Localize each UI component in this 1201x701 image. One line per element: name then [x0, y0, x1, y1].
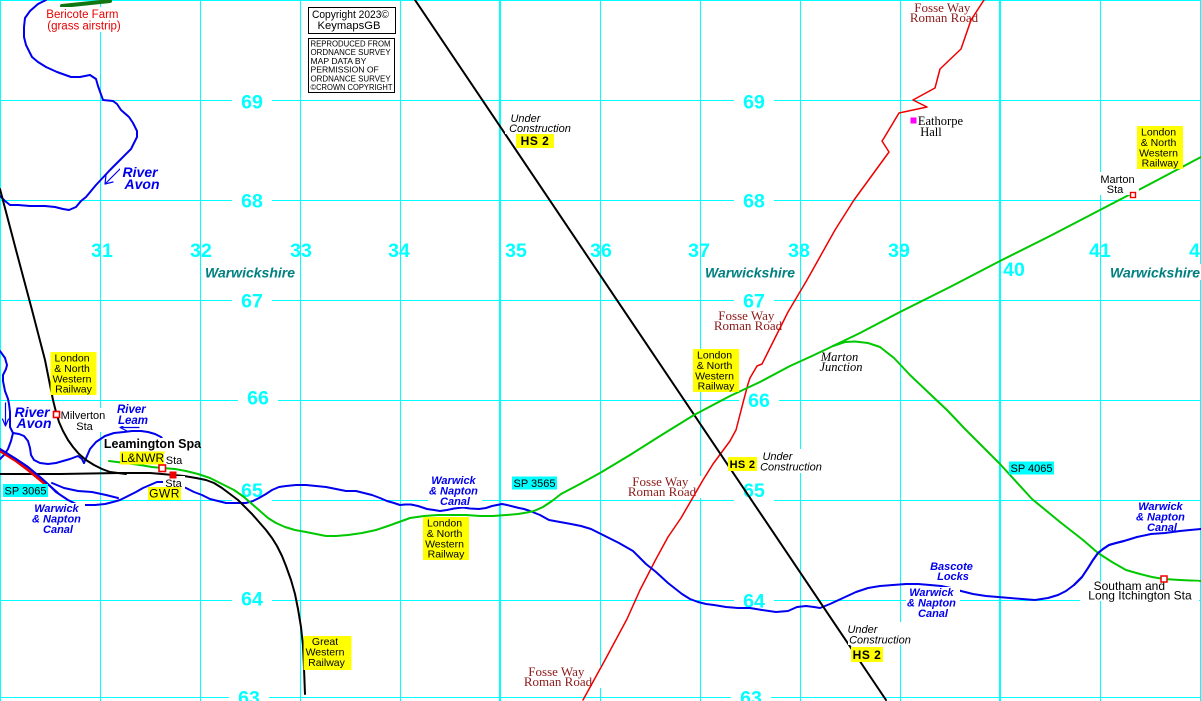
svg-text:London & North Western Railway: London & North Western Railway: [425, 518, 467, 561]
svg-text:Fosse Way Roman Road: Fosse Way Roman Road: [628, 474, 697, 499]
svg-text:SP 3065: SP 3065: [4, 486, 46, 498]
svg-text:64: 64: [241, 589, 263, 611]
svg-text:Fosse Way Roman Road: Fosse Way Roman Road: [910, 0, 979, 25]
svg-text:HS 2: HS 2: [853, 648, 882, 662]
svg-text:HS 2: HS 2: [521, 134, 550, 148]
svg-text:32: 32: [190, 240, 212, 262]
svg-text:River Avon: River Avon: [123, 164, 162, 192]
svg-text:42: 42: [1189, 240, 1201, 262]
svg-text:63: 63: [238, 688, 260, 701]
svg-text:37: 37: [688, 240, 710, 262]
svg-text:London & North Western Railway: London & North Western Railway: [53, 353, 95, 396]
svg-text:41: 41: [1089, 240, 1111, 262]
svg-text:39: 39: [888, 240, 910, 262]
svg-text:40: 40: [1003, 259, 1025, 281]
svg-text:68: 68: [743, 191, 765, 213]
svg-text:34: 34: [388, 240, 410, 262]
svg-text:Bericote Farm (grass airstrip): Bericote Farm (grass airstrip): [46, 9, 121, 33]
svg-text:London & North Western Railway: London & North Western Railway: [1139, 127, 1181, 170]
svg-text:35: 35: [505, 240, 527, 262]
svg-text:GWR: GWR: [149, 487, 180, 501]
svg-text:Fosse Way Roman Road: Fosse Way Roman Road: [524, 664, 593, 689]
svg-text:Copyright 2023© KeymapsGB: Copyright 2023© KeymapsGB: [312, 9, 392, 32]
svg-text:Leamington Spa: Leamington Spa: [104, 437, 202, 451]
svg-text:REPRODUCED FROM ORDNANCE SURVE: REPRODUCED FROM ORDNANCE SURVEY MAP DATA…: [311, 39, 394, 93]
svg-text:63: 63: [740, 688, 762, 701]
svg-text:Warwickshire: Warwickshire: [205, 265, 295, 281]
svg-text:Fosse Way Roman Road: Fosse Way Roman Road: [714, 308, 783, 333]
svg-text:River Leam: River Leam: [117, 404, 149, 427]
svg-text:33: 33: [290, 240, 312, 262]
svg-text:Warwickshire: Warwickshire: [1110, 265, 1200, 281]
svg-text:London & North Western Railway: London & North Western Railway: [695, 350, 737, 393]
svg-text:Marton Junction: Marton Junction: [819, 350, 862, 374]
svg-text:69: 69: [743, 92, 765, 114]
svg-text:66: 66: [247, 388, 269, 410]
svg-text:River Avon: River Avon: [15, 404, 54, 431]
svg-text:SP 3565: SP 3565: [513, 478, 555, 490]
svg-text:SP 4065: SP 4065: [1010, 463, 1052, 475]
svg-text:68: 68: [241, 191, 263, 213]
svg-text:69: 69: [241, 92, 263, 114]
svg-text:67: 67: [241, 291, 263, 313]
svg-text:HS 2: HS 2: [730, 459, 756, 471]
svg-text:Sta: Sta: [166, 455, 183, 467]
svg-text:38: 38: [788, 240, 810, 262]
svg-text:36: 36: [590, 240, 612, 262]
svg-text:Warwickshire: Warwickshire: [705, 265, 795, 281]
svg-text:L&NWR: L&NWR: [121, 451, 165, 465]
svg-text:31: 31: [91, 240, 113, 262]
svg-text:66: 66: [748, 390, 770, 412]
